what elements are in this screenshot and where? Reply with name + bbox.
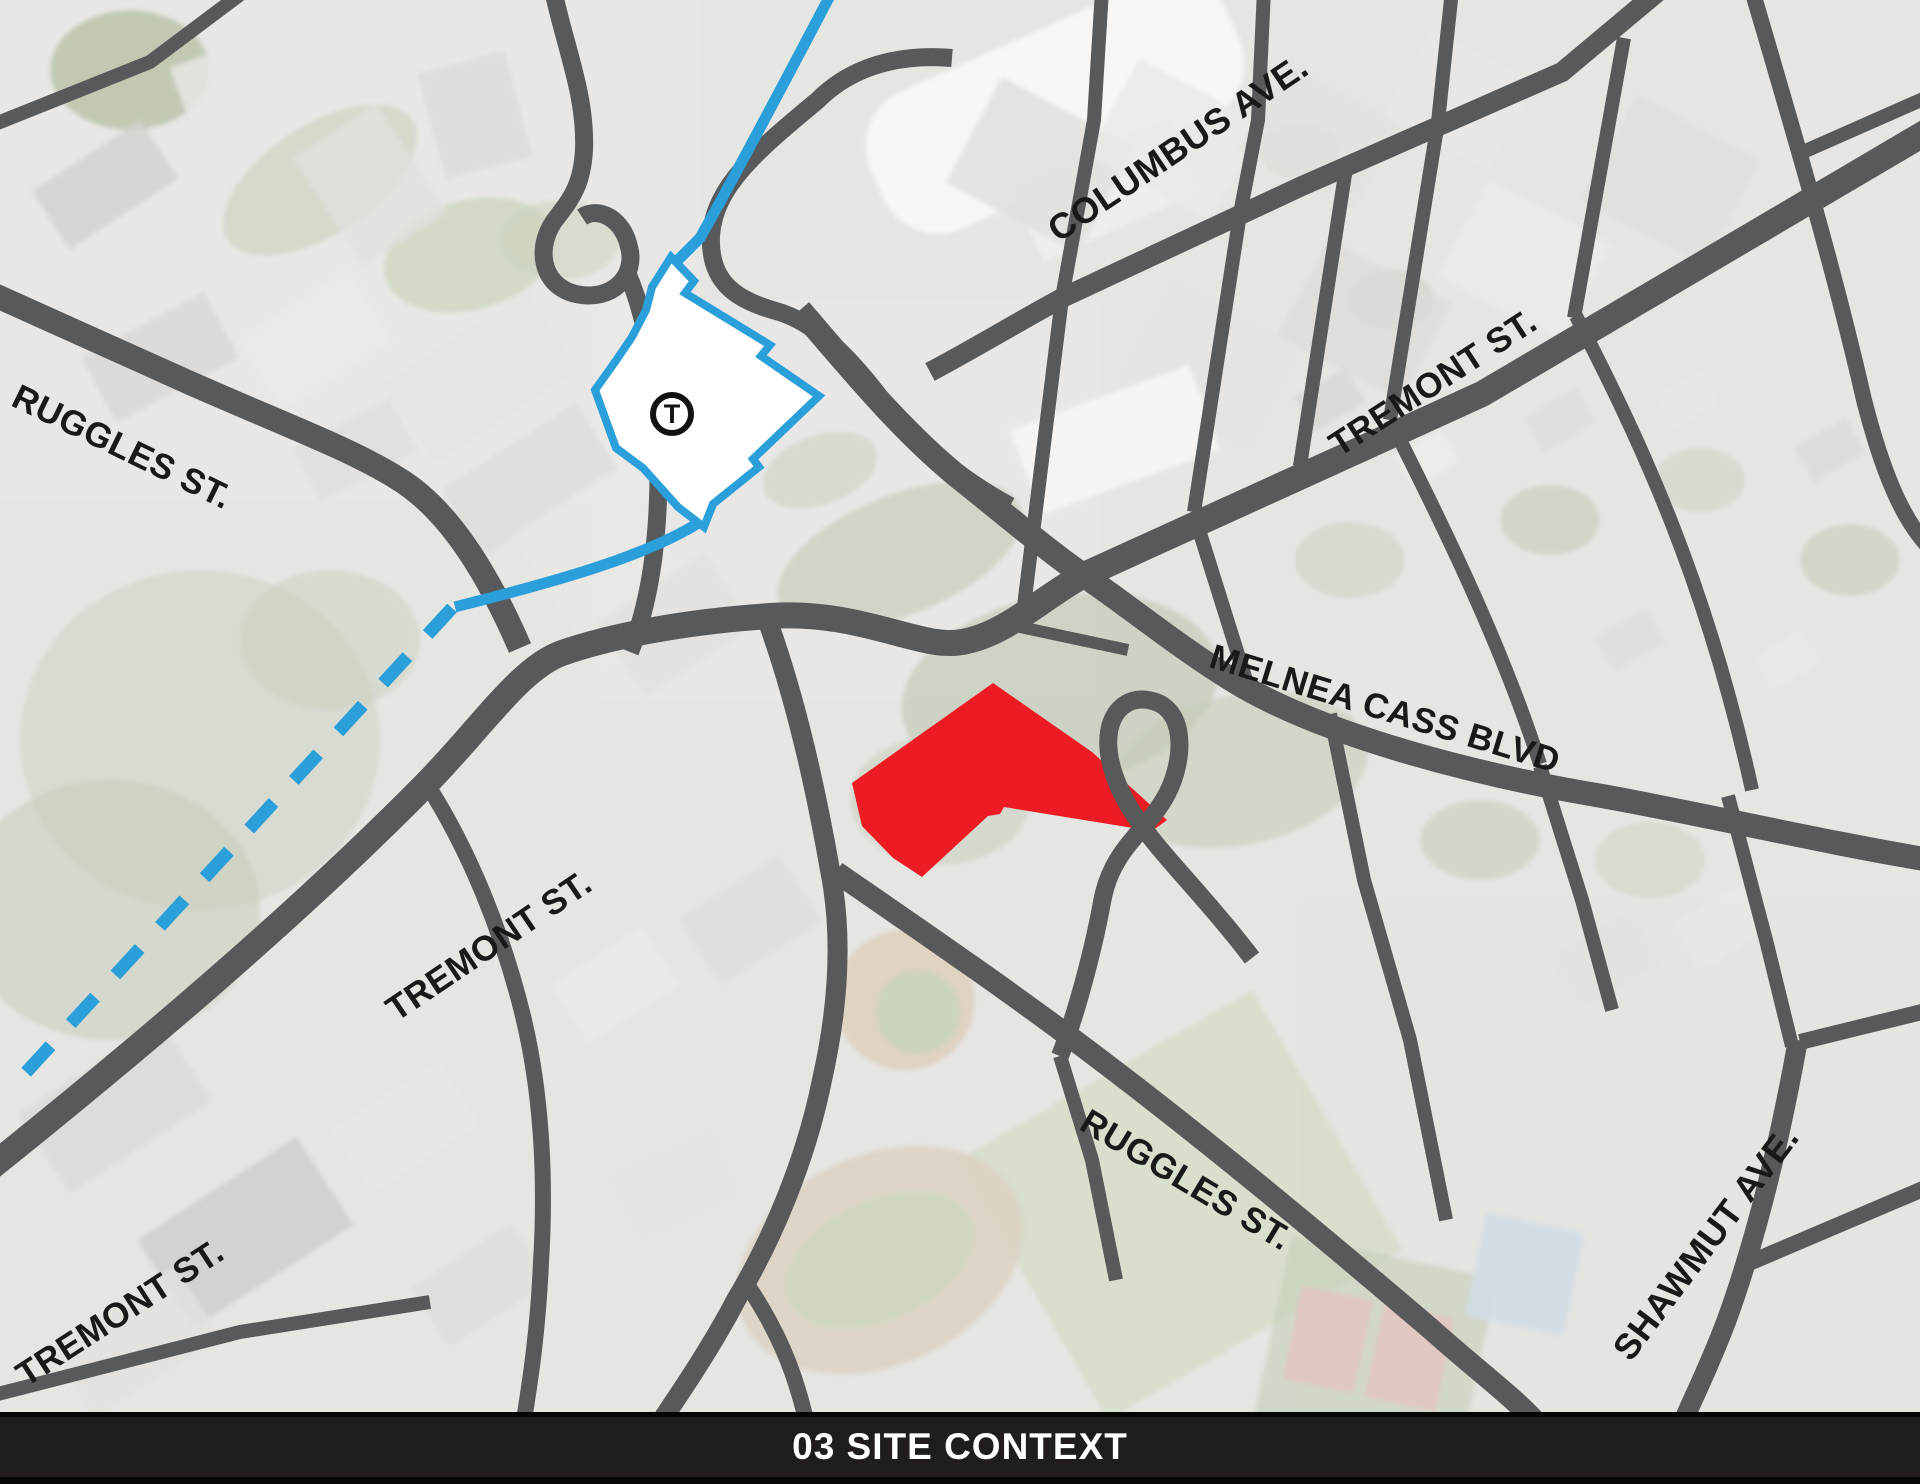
aerial-wash-overlay — [0, 0, 1920, 1412]
site-context-map-page: RUGGLES ST. COLUMBUS AVE. TREMONT ST. ME… — [0, 0, 1920, 1484]
map-canvas — [0, 0, 1920, 1412]
t-station-symbol: T — [664, 399, 681, 430]
page-title: 03 SITE CONTEXT — [792, 1426, 1128, 1468]
t-station-marker: T — [650, 392, 694, 436]
footer-title-bar: 03 SITE CONTEXT — [0, 1412, 1920, 1484]
